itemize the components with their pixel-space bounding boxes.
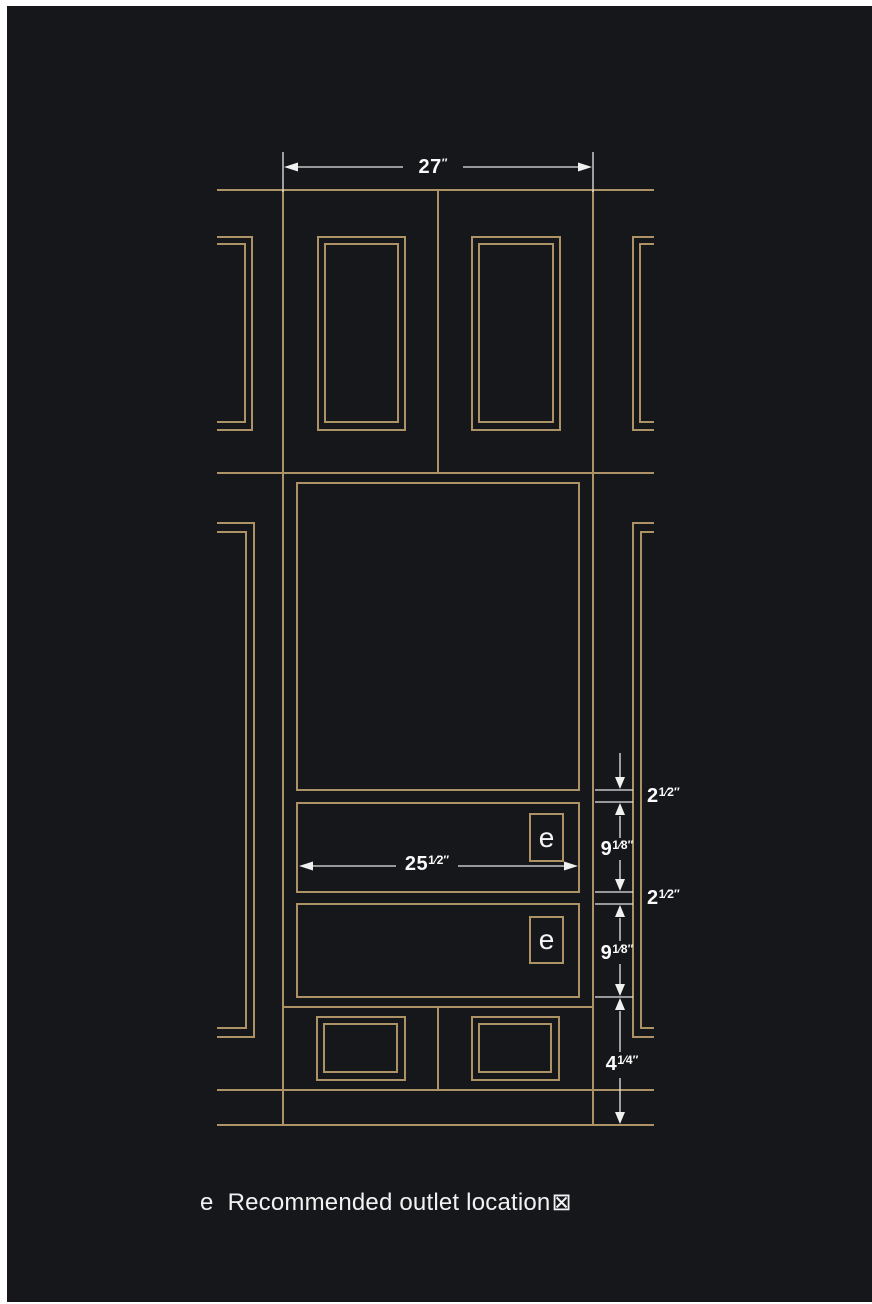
outlet-marker-e-2: e [530,917,563,963]
dimension-label-panel2-height: 91⁄8″ [601,943,634,963]
legend: e Recommended outlet location⊠ [200,1188,572,1217]
dimension-label-top-width: 27″ [419,157,448,177]
dimension-label-gap-top: 21⁄2″ [647,786,680,806]
outlet-marker-e-1: e [530,814,563,861]
missing-glyph: ⊠ [551,1188,571,1217]
dimension-label-panel1-height: 91⁄8″ [601,839,634,859]
dimension-lines [283,152,633,1112]
legend-symbol-e: e [200,1189,214,1217]
dimension-label-base-height: 41⁄4″ [606,1054,639,1074]
dimension-arrowheads [284,163,625,1125]
dimension-label-gap-bottom: 21⁄2″ [647,888,680,908]
page: 27″ 251⁄2″ 21⁄2″ 91⁄8″ 21⁄2″ 91⁄8″ 41⁄4″… [0,0,872,1304]
paneling-structure [217,190,654,1125]
elevation-line-drawing [0,0,872,1304]
dimension-label-panel-width: 251⁄2″ [405,854,449,874]
legend-text: Recommended outlet location⊠ [228,1188,572,1217]
